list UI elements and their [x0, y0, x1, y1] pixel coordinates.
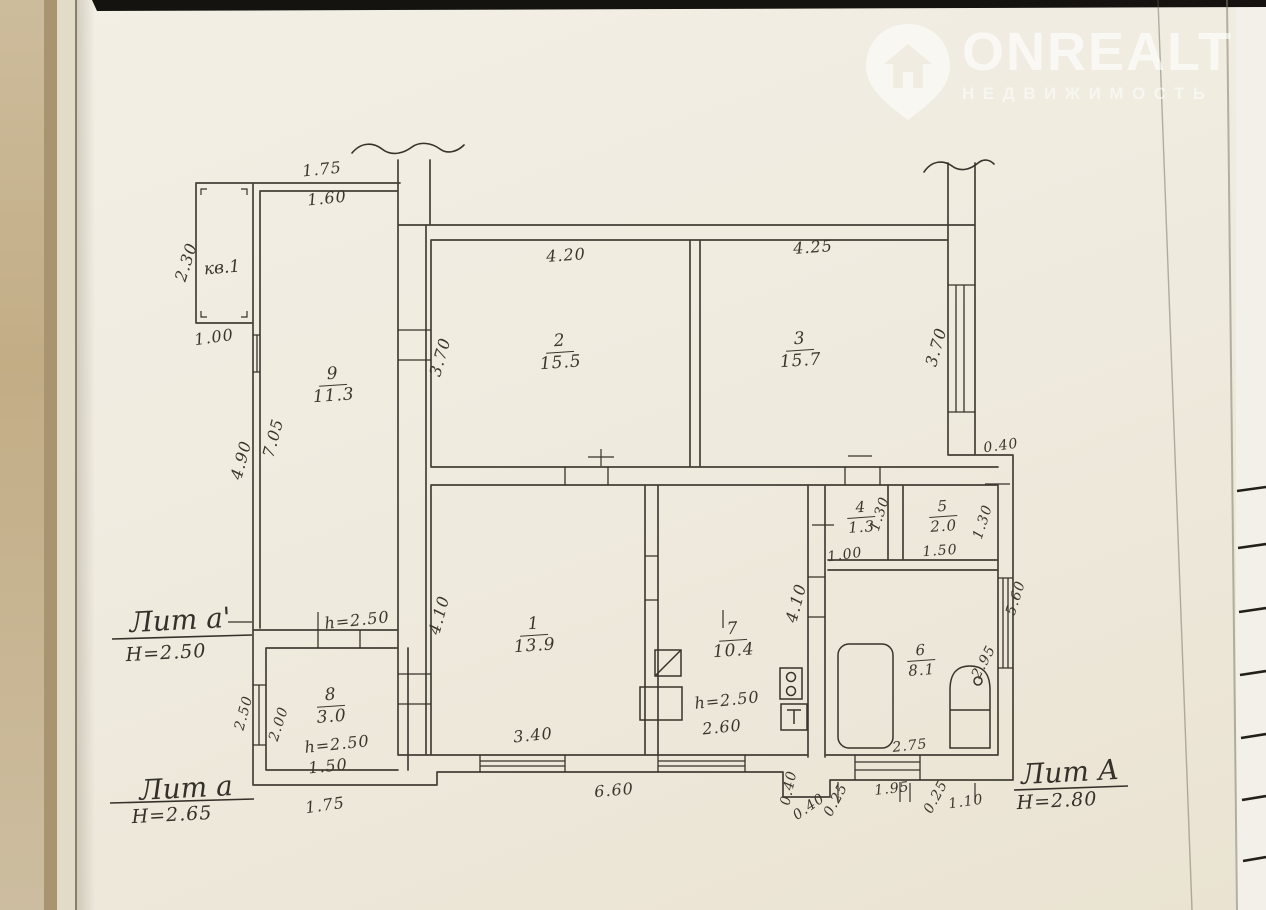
room-label-2: 215.5 [538, 330, 583, 373]
room-area: 2.0 [930, 516, 958, 535]
room-number: 5 [928, 497, 957, 517]
room-label-1: 113.9 [512, 613, 557, 656]
section-label-lit-a-prime: Лит а' [129, 601, 232, 639]
page-edge-right [1227, 0, 1237, 910]
room-number: 7 [717, 619, 747, 642]
chimney-break-marks [352, 143, 994, 172]
floorplan-scan: 911.3 215.5 315.7 41.3 52.0 113.9 710.4 … [0, 0, 1266, 910]
windows [253, 285, 1013, 780]
section-label-lit-A: Лит А [1020, 753, 1120, 791]
scan-top-bar [92, 0, 1266, 11]
section-height-lit-a-prime: Н=2.50 [125, 640, 207, 666]
watermark-brand: ONREALT [962, 24, 1233, 81]
dim-room5-bottom: 1.50 [922, 542, 958, 560]
room-label-6: 68.1 [906, 641, 936, 679]
section-height-lit-a: Н=2.65 [131, 802, 213, 828]
room-label-3: 315.7 [778, 328, 823, 371]
section-height-lit-A: Н=2.80 [1016, 788, 1098, 814]
room-number: 9 [317, 364, 347, 387]
watermark-text: ONREALT НЕДВИЖИМОСТЬ [962, 24, 1233, 104]
watermark: ONREALT НЕДВИЖИМОСТЬ [866, 24, 1233, 120]
door-openings [318, 330, 880, 704]
room-number: 2 [544, 331, 574, 354]
room-label-9: 911.3 [311, 363, 356, 406]
room-number: 1 [518, 614, 548, 637]
room-area: 3.0 [316, 705, 347, 727]
page-fold-line-right [1158, 0, 1192, 910]
apartment-label: кв.1 [203, 256, 241, 279]
room-label-7: 710.4 [711, 618, 756, 661]
dim-bottom-main: 6.60 [593, 779, 634, 801]
watermark-subtitle: НЕДВИЖИМОСТЬ [962, 84, 1233, 104]
room-area: 13.9 [513, 634, 556, 657]
ruled-lines-underlying-paper [1237, 487, 1266, 861]
dim-room3-top: 4.25 [793, 236, 834, 258]
room-area: 8.1 [908, 660, 936, 679]
room-area: 15.5 [539, 351, 582, 374]
stove-oven-icon [640, 687, 682, 720]
room-number: 3 [784, 329, 814, 352]
bathtub-icon [838, 644, 893, 748]
fixtures [640, 644, 990, 748]
watermark-pin-house-icon [866, 24, 950, 120]
room-area: 15.7 [779, 349, 822, 372]
section-label-lit-a: Лит а [138, 769, 233, 807]
room-area: 11.3 [312, 384, 355, 407]
room-number: 8 [315, 685, 345, 708]
room-area: 10.4 [712, 639, 755, 662]
room-label-8: 83.0 [315, 685, 348, 727]
dim-room2-top: 4.20 [546, 244, 587, 266]
room-label-5: 52.0 [928, 497, 958, 535]
room-number: 6 [906, 641, 935, 661]
